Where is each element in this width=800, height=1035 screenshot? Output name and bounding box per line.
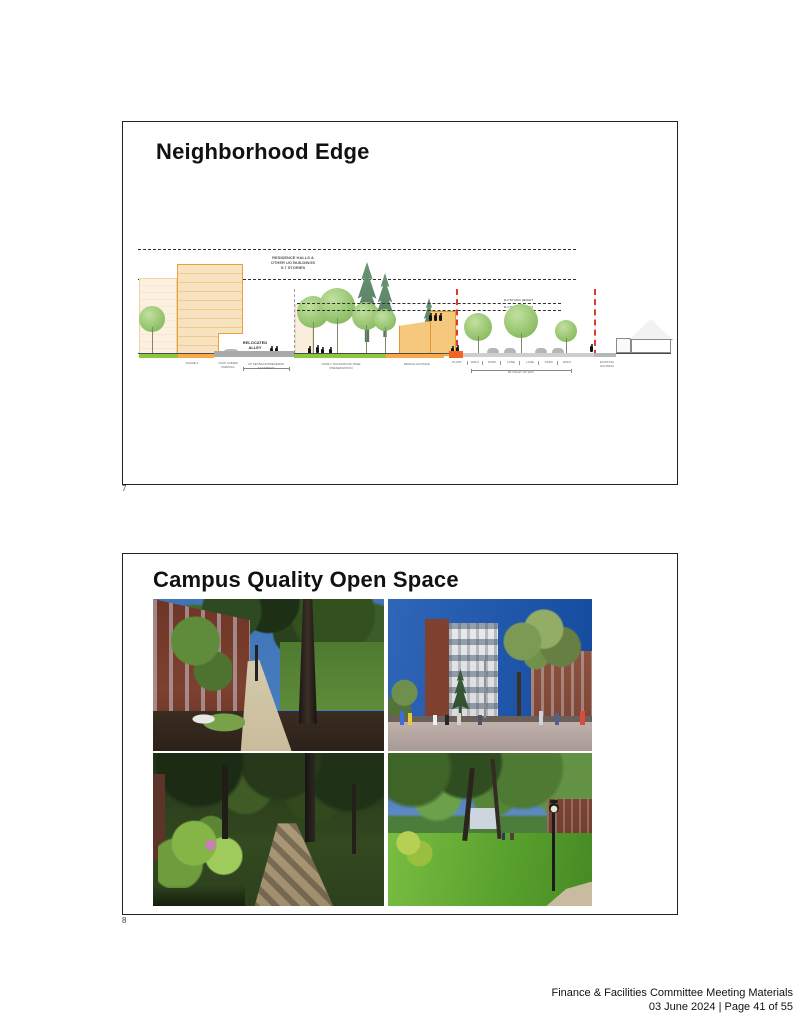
plaza-pavement bbox=[388, 721, 592, 751]
tree-trunk bbox=[305, 753, 314, 842]
tuck-under-parking-label: TUCK UNDER PARKING bbox=[211, 362, 245, 370]
existing-housing-label: EXISTING HOUSING bbox=[593, 361, 621, 369]
pedestrian bbox=[539, 711, 543, 725]
zoning-boundary-red-line bbox=[594, 289, 596, 356]
lamp-post bbox=[255, 645, 258, 681]
flowering-bush bbox=[199, 833, 222, 857]
light-pole bbox=[484, 660, 486, 718]
photo-historic-building-walkway bbox=[153, 599, 384, 751]
yellow-green-shrub bbox=[388, 817, 433, 869]
slide2-page-number: 8 bbox=[122, 916, 126, 925]
brick-tower bbox=[425, 619, 449, 721]
street-segment-label: PLANT bbox=[451, 361, 463, 365]
setback-label: 20' SETBACK/PRESERVE EASEMENT bbox=[241, 363, 291, 371]
residence-halls-label: RESIDENCE HALLS & OTHER UO BUILDINGS 5-7… bbox=[261, 256, 325, 270]
flowering-shrubs bbox=[176, 702, 245, 735]
slide-campus-quality-open-space: Campus Quality Open Space bbox=[122, 553, 678, 915]
street-segment-label: LANE bbox=[522, 361, 539, 365]
footer-line1: Finance & Facilities Committee Meeting M… bbox=[552, 987, 793, 1001]
document-page: { "document": { "footer": { "line1": "Fi… bbox=[0, 0, 800, 1035]
pedestrian bbox=[478, 715, 482, 726]
phase2-label: PHASE 2 bbox=[177, 362, 207, 366]
tree-trunk bbox=[313, 322, 314, 353]
large-tree-canopy bbox=[478, 608, 584, 696]
pedestrian bbox=[408, 713, 412, 725]
tree-trunk bbox=[366, 325, 367, 353]
page-footer: Finance & Facilities Committee Meeting M… bbox=[552, 987, 793, 1014]
tree-trunk bbox=[352, 784, 357, 854]
slide1-page-number: 7 bbox=[122, 484, 126, 493]
tree-trunk bbox=[385, 327, 386, 353]
tree-trunk bbox=[478, 336, 479, 353]
pedestrian bbox=[580, 711, 585, 725]
street-segment-label: LANE bbox=[503, 361, 520, 365]
distant-building-glimpse bbox=[470, 808, 499, 829]
house-annex bbox=[616, 338, 631, 353]
middle-housing-building-left bbox=[399, 321, 431, 356]
ground-green-strip bbox=[139, 354, 178, 358]
tree-trunk bbox=[152, 327, 153, 353]
pedestrian bbox=[457, 713, 461, 725]
rooftop-figure bbox=[434, 313, 437, 321]
tree-trunk bbox=[337, 318, 338, 353]
right-of-way-label: 60' RIGHT OF WAY bbox=[495, 371, 547, 375]
street-segment-label: PARK bbox=[541, 361, 558, 365]
ground-orange-strip bbox=[386, 354, 444, 358]
slide2-title: Campus Quality Open Space bbox=[153, 567, 459, 593]
tree-trunk bbox=[521, 333, 522, 353]
distant-pedestrian bbox=[502, 833, 505, 841]
footer-line2: 03 June 2024 | Page 41 of 55 bbox=[552, 1001, 793, 1015]
pedestrian bbox=[433, 715, 437, 726]
tree-preservation-label: FAMILY TRANSITION/ TREE PRESERVATION bbox=[311, 363, 371, 371]
middle-housing-label: MIDDLE HOUSING bbox=[397, 363, 437, 367]
pedestrian bbox=[555, 713, 559, 725]
tree-trunk bbox=[566, 338, 567, 353]
street-surface bbox=[463, 353, 594, 357]
lamp-post-pole bbox=[552, 811, 555, 891]
house-wall bbox=[631, 338, 671, 353]
slide-neighborhood-edge: Neighborhood Edge RESIDENCE HALLS & OTHE… bbox=[122, 121, 678, 485]
foreground-foliage bbox=[171, 611, 231, 711]
photo-shaded-garden-path bbox=[153, 753, 384, 906]
ground-orange-strip bbox=[178, 354, 214, 358]
street-segment-label: PARK bbox=[484, 361, 501, 365]
photo-residence-hall-plaza bbox=[388, 599, 592, 751]
foreground-shade bbox=[153, 885, 245, 906]
lamp-post-head bbox=[549, 803, 559, 812]
lawn bbox=[280, 642, 384, 710]
photo-sunny-lawn-lamp bbox=[388, 753, 592, 906]
rooftop-figure bbox=[429, 313, 432, 321]
road-surface bbox=[594, 353, 616, 357]
r2-height-label: R-2 50' MAX HEIGHT bbox=[504, 299, 562, 303]
house-roof bbox=[629, 319, 673, 340]
street-segment-label: WALK bbox=[560, 361, 574, 365]
neighborhood-edge-section-diagram: RESIDENCE HALLS & OTHER UO BUILDINGS 5-7… bbox=[123, 122, 677, 484]
plaza-shadow-band bbox=[388, 716, 592, 722]
ground-green-strip bbox=[294, 354, 386, 358]
pedestrian-figure bbox=[590, 344, 593, 352]
rooftop-figure bbox=[439, 313, 442, 321]
distant-pedestrian bbox=[510, 833, 513, 841]
street-segment-label: WALK bbox=[467, 361, 483, 365]
relocated-alley-label: RELOCATED ALLEY bbox=[239, 341, 271, 351]
tree-trunk bbox=[222, 765, 228, 838]
pedestrian bbox=[445, 715, 449, 726]
pedestrian bbox=[400, 711, 404, 725]
height-limit-line-upper bbox=[138, 249, 576, 250]
ground-accent-block bbox=[449, 351, 463, 358]
alley-road-surface bbox=[214, 351, 294, 357]
